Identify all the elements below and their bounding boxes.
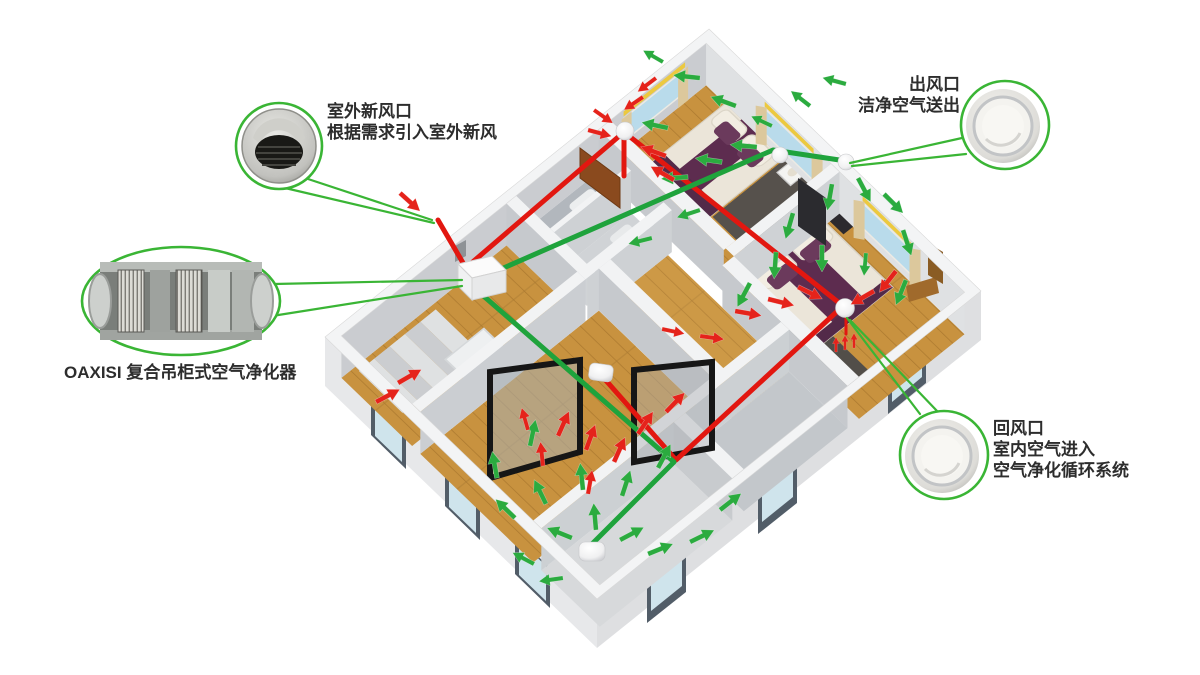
fresh-air-inlet-label: 室外新风口 根据需求引入室外新风 <box>327 101 497 143</box>
supply-outlet-label: 出风口 洁净空气送出 <box>818 74 960 116</box>
purifier-name: OAXISI 复合吊柜式空气净化器 <box>64 362 296 383</box>
supply-outlet-desc: 洁净空气送出 <box>818 95 960 116</box>
ceiling-purifier-unit <box>458 256 506 300</box>
return-inlet-desc1: 室内空气进入 <box>993 439 1129 460</box>
duct-air-purifier-cutaway-photo <box>89 262 273 340</box>
diagram-canvas: 室外新风口 根据需求引入室外新风 OAXISI 复合吊柜式空气净化器 出风口 洁… <box>0 0 1200 675</box>
return-inlet-label: 回风口 室内空气进入 空气净化循环系统 <box>993 418 1129 481</box>
return-grille-living <box>588 362 614 382</box>
return-grille-bedroom2 <box>836 299 855 318</box>
return-inlet-desc2: 空气净化循环系统 <box>993 460 1129 481</box>
floorplan-illustration <box>0 0 1200 675</box>
fresh-air-inlet-desc: 根据需求引入室外新风 <box>327 122 497 143</box>
supply-diffuser-bedroom1 <box>772 147 788 163</box>
round-ceiling-diffuser-photo <box>905 419 979 493</box>
round-ceiling-diffuser-photo <box>966 89 1040 163</box>
supply-diffuser-living <box>579 542 605 561</box>
fresh-air-inlet-title: 室外新风口 <box>327 101 497 122</box>
outdoor-cowl-vent-photo <box>242 109 316 183</box>
return-inlet-title: 回风口 <box>993 418 1129 439</box>
purifier-label: OAXISI 复合吊柜式空气净化器 <box>64 362 296 383</box>
supply-outlet-title: 出风口 <box>818 74 960 95</box>
return-grille-bedroom1 <box>616 122 634 140</box>
